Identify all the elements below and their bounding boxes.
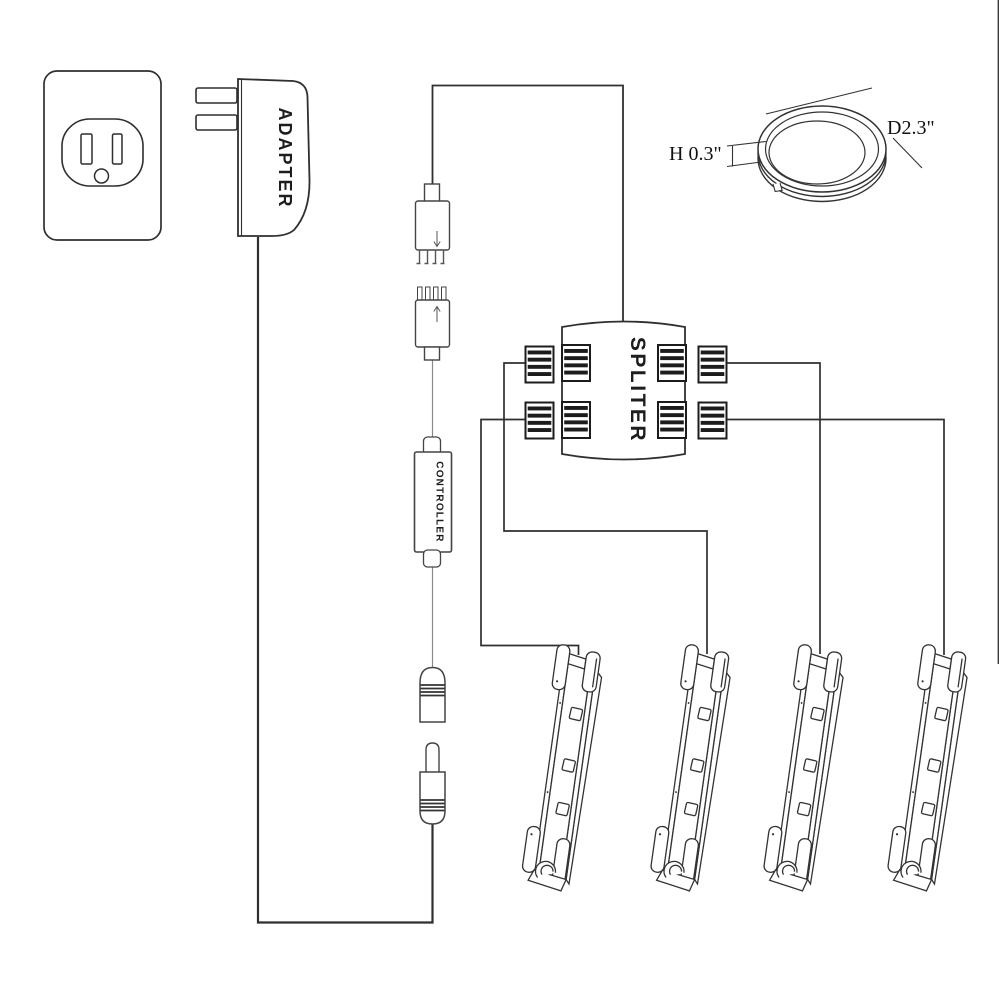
male-connector-pins <box>417 250 445 264</box>
dc-plug-male <box>420 743 445 824</box>
male-connector-body <box>416 201 450 250</box>
outlet-ground-hole <box>95 169 109 183</box>
adapter-label: ADAPTER <box>275 107 295 208</box>
power-adapter: ADAPTER <box>196 79 310 236</box>
male-connector-neck <box>425 184 440 202</box>
wiring-diagram-canvas: ADAPTER <box>0 0 1000 1000</box>
female-connector-prong <box>418 287 423 301</box>
female-connector-prong <box>426 287 431 301</box>
controller-label: CONTROLLER <box>434 461 445 542</box>
splitter-label: SPLITER <box>626 337 649 443</box>
dc-plug-body <box>420 772 445 824</box>
splitter-port-inner-right-top <box>658 345 686 381</box>
diagram-page: ADAPTER <box>0 0 1000 1000</box>
adapter-cord-wire <box>258 237 433 923</box>
height-dimension-label: H 0.3" <box>669 143 722 165</box>
controller-bottom-neck <box>424 550 441 567</box>
connector-to-splitter-wire <box>433 86 624 323</box>
splitter-plug-outer-left-bottom <box>526 403 554 439</box>
splitter-output-wire-4 <box>727 420 945 656</box>
female-connector-prong <box>442 287 447 301</box>
splitter-port-inner-left-bottom <box>562 402 590 438</box>
splitter-plug-outer-right-bottom <box>699 403 727 439</box>
connector-4pin-female <box>416 287 450 360</box>
puck-outer-rim <box>758 106 886 192</box>
adapter-body <box>238 79 310 236</box>
splitter-plug-outer-right-top <box>699 347 727 383</box>
controller: CONTROLLER <box>415 437 452 567</box>
splitter-output-wire-3 <box>727 363 821 654</box>
splitter-port-inner-right-bottom <box>658 402 686 438</box>
controller-body <box>415 452 452 552</box>
diameter-extension-line-lower <box>893 138 922 168</box>
adapter-prong-bottom <box>196 115 237 130</box>
splitter: SPLITER <box>526 322 727 460</box>
adapter-prong-top <box>196 88 237 103</box>
wall-outlet <box>44 71 161 240</box>
splitter-plug-outer-left-top <box>526 347 554 383</box>
dc-jack-female <box>420 668 445 723</box>
dc-plug-tip <box>426 743 439 773</box>
light-bar-4 <box>885 643 970 892</box>
puck-notch <box>773 183 782 192</box>
diameter-dimension-label: D2.3" <box>887 117 935 139</box>
female-connector-prong <box>434 287 439 301</box>
light-bar-2 <box>648 643 733 892</box>
outlet-slot-neutral <box>81 134 92 164</box>
connector-4pin-male <box>416 184 450 264</box>
female-connector-neck <box>425 347 440 360</box>
outlet-slot-hot <box>113 134 123 164</box>
light-bar-3 <box>761 643 846 892</box>
female-connector-body <box>416 300 450 347</box>
puck-light <box>758 106 886 202</box>
splitter-port-inner-left-top <box>562 345 590 381</box>
light-bar-1 <box>520 643 605 892</box>
